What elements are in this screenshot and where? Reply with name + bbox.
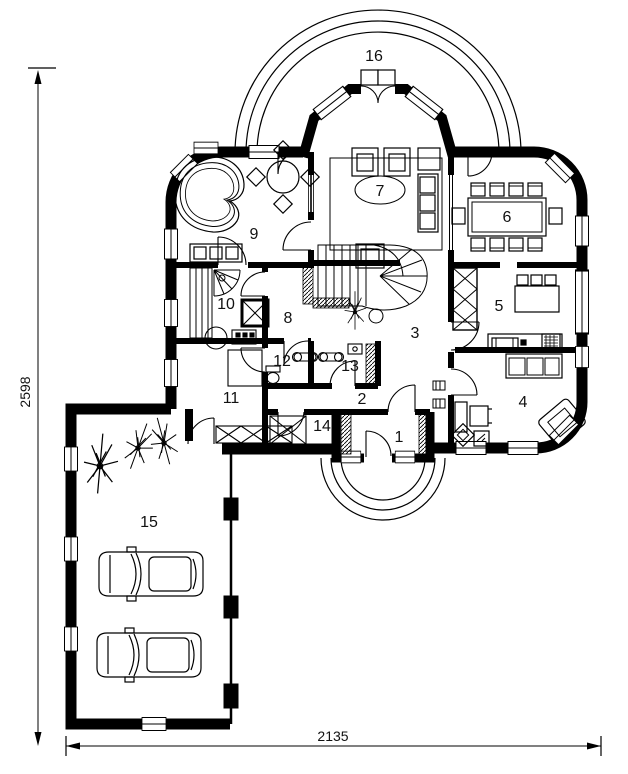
window <box>65 627 78 651</box>
room-label-5: 5 <box>495 298 504 315</box>
dimension-bottom-label: 2135 <box>317 728 348 744</box>
armchair <box>384 148 410 176</box>
chair <box>471 238 485 251</box>
chair <box>490 238 504 251</box>
dimension-left-label: 2598 <box>17 376 33 407</box>
toilet <box>267 373 279 384</box>
garage-contents <box>81 414 203 682</box>
room-label-12: 12 <box>273 353 291 370</box>
window <box>65 537 78 561</box>
corner-shower <box>214 270 240 296</box>
stool <box>545 275 556 285</box>
door-arc <box>451 369 477 395</box>
wall-pier <box>224 498 238 520</box>
window <box>249 146 279 159</box>
island-table <box>515 286 559 312</box>
window <box>165 229 178 259</box>
room-label-4: 4 <box>519 394 528 411</box>
windows <box>65 142 589 730</box>
room-label-9: 9 <box>250 226 259 243</box>
room-label-14: 14 <box>313 418 331 435</box>
room-9-furniture <box>175 141 319 262</box>
window <box>395 451 415 463</box>
room-label-2: 2 <box>358 391 367 408</box>
towel-rail <box>320 353 342 361</box>
room-label-16: 16 <box>365 48 383 65</box>
dimension-left: 2598 <box>17 68 56 746</box>
chair <box>471 183 485 196</box>
side-table <box>418 148 440 170</box>
room-11-furniture <box>205 327 262 386</box>
dimension-arrow-right <box>587 743 601 750</box>
entrance-bay <box>235 10 521 157</box>
door-arc <box>451 322 479 350</box>
radiator <box>366 344 377 388</box>
room-label-8: 8 <box>284 310 293 327</box>
chair <box>452 208 465 224</box>
dimension-arrow-down <box>35 732 42 746</box>
floor-plan-drawing: 2598 2135 <box>0 0 628 774</box>
wall-pier <box>224 684 238 708</box>
chair <box>274 195 292 213</box>
chair <box>528 183 542 196</box>
wall-pier <box>224 596 238 618</box>
chair <box>509 183 523 196</box>
radiator <box>419 414 429 454</box>
car <box>97 628 201 682</box>
window <box>508 442 538 455</box>
door-arc <box>283 222 311 250</box>
window <box>405 86 443 119</box>
desk <box>455 402 467 432</box>
car <box>99 547 203 601</box>
round-table <box>267 161 299 193</box>
window <box>576 271 589 334</box>
window <box>165 300 178 327</box>
window <box>165 360 178 387</box>
room-label-15: 15 <box>140 514 158 531</box>
window <box>576 216 589 246</box>
room-label-7: 7 <box>376 183 385 200</box>
door-arc <box>388 385 415 412</box>
door-arc <box>241 272 265 296</box>
plant-icon <box>345 291 367 329</box>
window <box>142 718 166 731</box>
radiator <box>303 266 313 304</box>
armchair <box>352 148 378 176</box>
door-leaf <box>361 70 378 85</box>
chair <box>509 238 523 251</box>
kitchen-furniture <box>453 268 562 352</box>
dimension-arrow-left <box>66 743 80 750</box>
chair <box>549 208 562 224</box>
wall-lamp <box>433 399 445 408</box>
plant-icon <box>145 414 184 467</box>
tap <box>521 340 526 345</box>
room-label-6: 6 <box>503 209 512 226</box>
room-label-1: 1 <box>395 429 404 446</box>
stool <box>517 275 528 285</box>
dimension-bottom: 2135 <box>66 728 601 756</box>
dimension-arrow-up <box>35 70 42 84</box>
room-label-11: 11 <box>223 390 240 407</box>
desk-chair <box>470 406 488 426</box>
shelving <box>190 268 212 338</box>
door-leaf <box>378 70 395 85</box>
living-room-furniture <box>330 148 442 268</box>
radiator <box>313 298 349 308</box>
room-label-13: 13 <box>341 358 359 375</box>
closets <box>216 416 306 444</box>
chair <box>490 183 504 196</box>
plant-icon <box>81 432 120 495</box>
window <box>313 86 351 119</box>
floor-plan-page: 2598 2135 <box>0 0 628 774</box>
porch-arcs-bottom <box>321 458 445 520</box>
plant-icon <box>118 419 160 473</box>
chair <box>528 238 542 251</box>
wall-lamp <box>433 381 445 390</box>
door-arc <box>241 348 265 372</box>
window <box>194 142 218 154</box>
radiator <box>341 414 351 454</box>
window <box>576 347 589 368</box>
window <box>65 447 78 471</box>
room-label-10: 10 <box>217 296 235 313</box>
cistern <box>348 344 362 354</box>
chair <box>247 168 265 186</box>
room-label-3: 3 <box>411 325 420 342</box>
stool <box>531 275 542 285</box>
staircase <box>303 245 427 330</box>
table <box>228 350 262 386</box>
vase <box>369 309 383 323</box>
